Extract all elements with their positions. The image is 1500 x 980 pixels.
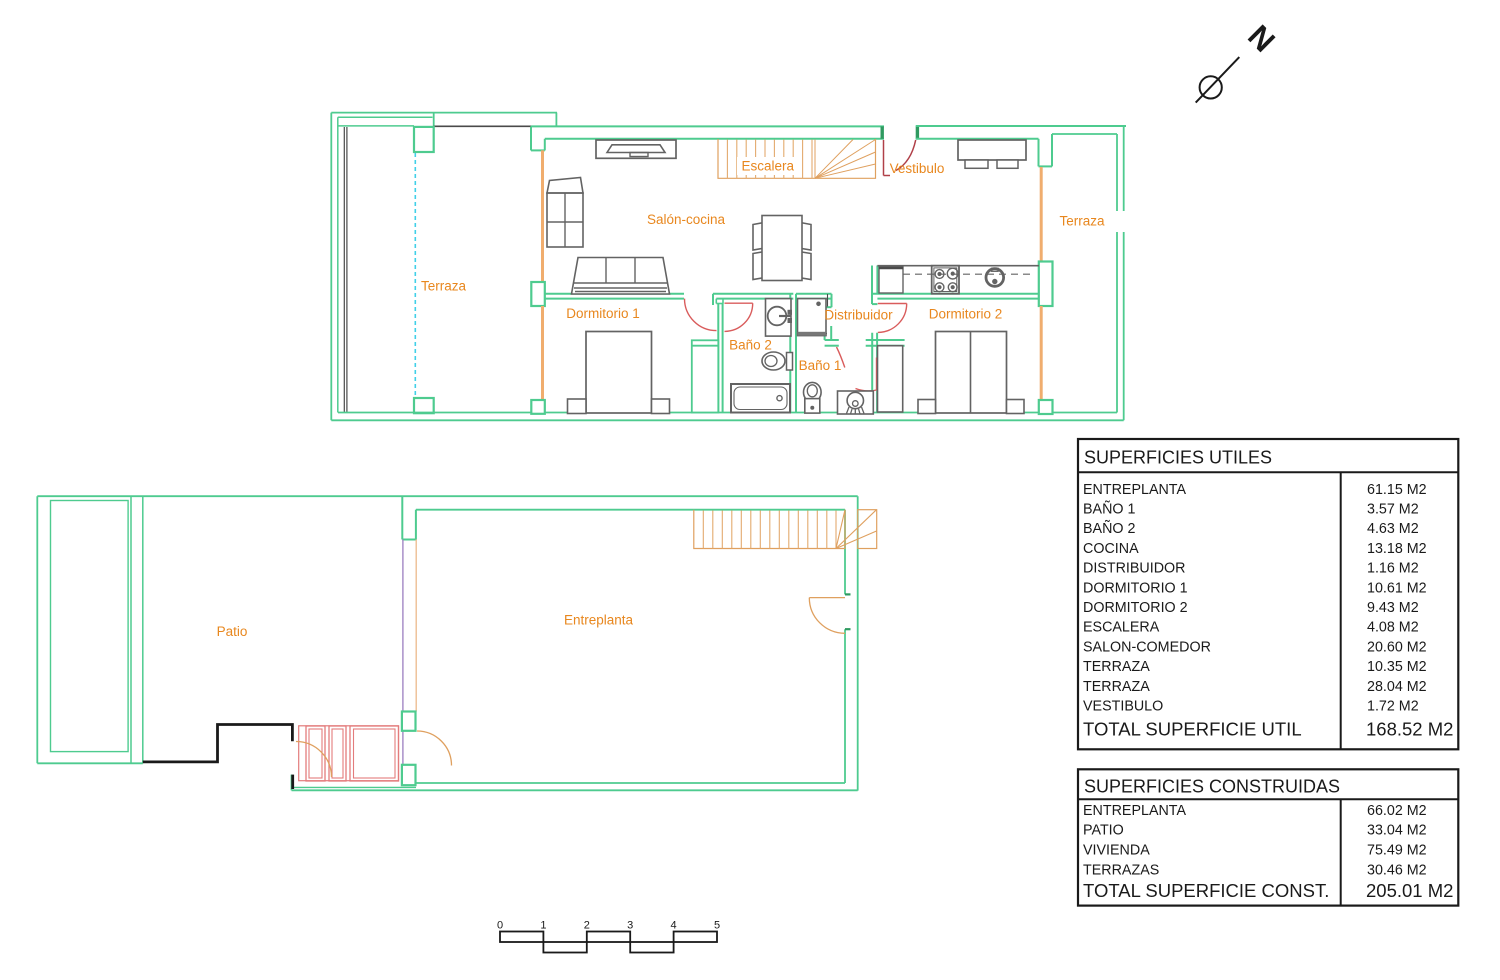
svg-text:20.60 M2: 20.60 M2 — [1367, 639, 1427, 655]
svg-text:4.63 M2: 4.63 M2 — [1367, 521, 1419, 537]
svg-text:SUPERFICIES CONSTRUIDAS: SUPERFICIES CONSTRUIDAS — [1084, 777, 1340, 797]
svg-text:5: 5 — [714, 920, 720, 932]
svg-text:TOTAL SUPERFICIE UTIL: TOTAL SUPERFICIE UTIL — [1083, 719, 1302, 740]
svg-text:10.35 M2: 10.35 M2 — [1367, 659, 1427, 675]
svg-text:PATIO: PATIO — [1083, 823, 1124, 839]
svg-text:ENTREPLANTA: ENTREPLANTA — [1083, 482, 1186, 498]
svg-text:30.46 M2: 30.46 M2 — [1367, 863, 1427, 879]
svg-text:TERRAZAS: TERRAZAS — [1083, 863, 1159, 879]
svg-text:Vestibulo: Vestibulo — [890, 161, 945, 176]
svg-text:33.04 M2: 33.04 M2 — [1367, 823, 1427, 839]
svg-text:3: 3 — [627, 920, 633, 932]
svg-text:VESTIBULO: VESTIBULO — [1083, 699, 1163, 715]
svg-text:SALON-COMEDOR: SALON-COMEDOR — [1083, 639, 1211, 655]
svg-text:DISTRIBUIDOR: DISTRIBUIDOR — [1083, 561, 1185, 577]
svg-text:DORMITORIO 2: DORMITORIO 2 — [1083, 600, 1188, 616]
svg-text:4.08 M2: 4.08 M2 — [1367, 620, 1419, 636]
svg-text:66.02 M2: 66.02 M2 — [1367, 803, 1427, 819]
svg-text:Dormitorio 2: Dormitorio 2 — [929, 307, 1003, 322]
svg-text:10.61 M2: 10.61 M2 — [1367, 580, 1427, 596]
svg-text:75.49 M2: 75.49 M2 — [1367, 843, 1427, 859]
svg-text:0: 0 — [497, 920, 503, 932]
svg-text:61.15 M2: 61.15 M2 — [1367, 482, 1427, 498]
svg-text:N: N — [1241, 18, 1282, 59]
svg-text:TOTAL SUPERFICIE CONST.: TOTAL SUPERFICIE CONST. — [1083, 880, 1329, 901]
svg-text:Terraza: Terraza — [421, 279, 467, 294]
svg-text:TERRAZA: TERRAZA — [1083, 659, 1150, 675]
svg-text:COCINA: COCINA — [1083, 541, 1139, 557]
svg-text:ENTREPLANTA: ENTREPLANTA — [1083, 803, 1186, 819]
svg-text:3.57 M2: 3.57 M2 — [1367, 502, 1419, 518]
svg-text:Distribuidor: Distribuidor — [824, 308, 893, 323]
svg-text:9.43 M2: 9.43 M2 — [1367, 600, 1419, 616]
svg-text:Escalera: Escalera — [742, 159, 795, 174]
svg-text:BAÑO 1: BAÑO 1 — [1083, 501, 1135, 518]
svg-text:1: 1 — [540, 920, 546, 932]
svg-text:Salón-cocina: Salón-cocina — [647, 212, 726, 227]
svg-text:2: 2 — [584, 920, 590, 932]
svg-text:BAÑO 2: BAÑO 2 — [1083, 520, 1135, 537]
svg-text:Patio: Patio — [217, 624, 248, 639]
svg-text:Terraza: Terraza — [1059, 214, 1105, 229]
svg-text:4: 4 — [671, 920, 677, 932]
svg-text:28.04 M2: 28.04 M2 — [1367, 679, 1427, 695]
svg-text:SUPERFICIES UTILES: SUPERFICIES UTILES — [1084, 448, 1272, 468]
svg-text:VIVIENDA: VIVIENDA — [1083, 843, 1150, 859]
svg-text:TERRAZA: TERRAZA — [1083, 679, 1150, 695]
svg-text:205.01 M2: 205.01 M2 — [1366, 880, 1453, 901]
svg-text:1.16 M2: 1.16 M2 — [1367, 561, 1419, 577]
svg-text:Baño 1: Baño 1 — [799, 358, 842, 373]
svg-text:DORMITORIO 1: DORMITORIO 1 — [1083, 580, 1188, 596]
svg-text:Entreplanta: Entreplanta — [564, 613, 634, 628]
svg-text:Baño 2: Baño 2 — [729, 338, 772, 353]
svg-text:168.52 M2: 168.52 M2 — [1366, 719, 1453, 740]
svg-text:ESCALERA: ESCALERA — [1083, 620, 1160, 636]
svg-text:13.18 M2: 13.18 M2 — [1367, 541, 1427, 557]
svg-text:Dormitorio 1: Dormitorio 1 — [566, 306, 640, 321]
svg-text:1.72 M2: 1.72 M2 — [1367, 699, 1419, 715]
